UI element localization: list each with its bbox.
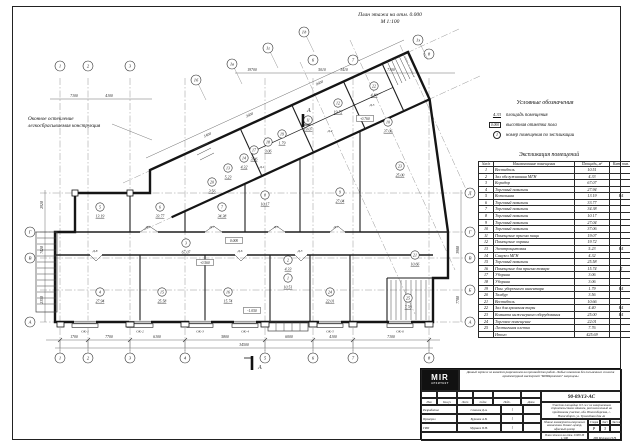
legend-symbol-box: 0.000 — [489, 122, 501, 128]
svg-text:9: 9 — [339, 191, 341, 195]
legend-item-label: номер помещения по экспликации — [506, 133, 574, 138]
svg-text:13.19: 13.19 — [96, 215, 105, 219]
logo-subtext: АРХИТЕКТ — [422, 382, 458, 385]
svg-text:21: 21 — [413, 254, 417, 258]
legend-item: 1номер помещения по экспликации — [470, 130, 620, 140]
object-name: Здание коммерческо-торгового назначения.… — [541, 419, 588, 432]
svg-text:33.77: 33.77 — [156, 215, 166, 219]
schedule-row: 13Электрощитовая5.23В4 — [479, 246, 630, 253]
logo-text: MIR — [422, 373, 458, 382]
schedule-row: 3Коридор67.07 — [479, 180, 630, 187]
plan-scale: М 1:100 — [300, 19, 480, 26]
diagonal-grid-lines — [123, 29, 480, 314]
svg-text:1б: 1б — [194, 78, 199, 83]
schedule-total-row: Итого425.69 — [479, 331, 630, 338]
drawing-sheet: А А 12345678123678ГВАДГВБА1б1в1г1д1з 170… — [0, 0, 630, 445]
document-number: 90-09/13-АС — [541, 391, 622, 402]
svg-text:-1.050: -1.050 — [247, 309, 257, 313]
signature-mark: ⌇ — [501, 423, 523, 432]
svg-text:ОК-6: ОК-6 — [396, 330, 404, 334]
svg-text:1: 1 — [287, 277, 289, 281]
sheet-title-cell: План этажа на отм. 0.000 М 1:100 — [541, 432, 588, 441]
svg-text:22.01: 22.01 — [326, 300, 335, 304]
svg-text:2920: 2920 — [40, 201, 44, 209]
svg-text:9600: 9600 — [315, 80, 324, 87]
schedule-row: 6Торговый павильон33.77 — [479, 199, 630, 206]
schedule-row: 2Зал обслуживания МГН4.33 — [479, 173, 630, 180]
svg-text:1: 1 — [59, 64, 61, 69]
sheet-number: 3 — [600, 425, 610, 432]
title-block: MIR АРХИТЕКТ Данный чертеж не является р… — [420, 368, 621, 440]
svg-text:10.17: 10.17 — [261, 203, 271, 207]
svg-text:15.74: 15.74 — [224, 300, 233, 304]
svg-text:Д-7: Д-7 — [145, 225, 151, 229]
svg-text:7100: 7100 — [387, 335, 395, 339]
site-description: Участок площадью 0.3 га с не завершенным… — [541, 402, 622, 419]
schedule-row: 4Торговый павильон27.94 — [479, 186, 630, 193]
svg-text:8: 8 — [264, 194, 266, 198]
svg-text:ОК-5: ОК-5 — [326, 330, 334, 334]
svg-text:4100: 4100 — [329, 335, 337, 339]
schedule-row: 18Уборная3.06 — [479, 279, 630, 286]
window-labels: ОК-1ОК-2ОК-3ОК-4ОК-5ОК-6 — [81, 330, 404, 334]
signature-role: Разработал — [421, 405, 457, 414]
svg-text:А: А — [468, 320, 472, 325]
svg-text:22: 22 — [372, 85, 376, 89]
svg-text:1: 1 — [59, 356, 61, 361]
svg-text:3: 3 — [185, 242, 187, 246]
svg-text:15: 15 — [160, 291, 164, 295]
svg-text:Д-1: Д-1 — [259, 165, 265, 169]
svg-text:34.38: 34.38 — [218, 215, 227, 219]
svg-text:Б: Б — [468, 288, 472, 293]
svg-text:3.06: 3.06 — [251, 158, 258, 162]
svg-text:7100: 7100 — [387, 68, 395, 72]
svg-text:А: А — [257, 365, 262, 371]
svg-text:Д-7: Д-7 — [273, 225, 279, 229]
svg-text:А: А — [28, 320, 32, 325]
svg-text:3600: 3600 — [245, 112, 254, 119]
signature-name: Соколов Д.А. — [457, 405, 501, 414]
schedule-row: 5Котельная13.19В4 — [479, 193, 630, 200]
svg-text:10.51: 10.51 — [284, 286, 293, 290]
schedule-row: 17Уборная3.06 — [479, 272, 630, 279]
svg-text:25: 25 — [406, 297, 410, 301]
room-schedule-table: №п/пНаименование помещенияПлощадь, м²Кат… — [478, 161, 630, 339]
legend-item: 4.33площадь помещения — [470, 110, 620, 120]
svg-text:5: 5 — [99, 206, 101, 210]
svg-text:3.06: 3.06 — [265, 150, 272, 154]
svg-text:В: В — [29, 256, 32, 261]
corridor-walls — [55, 232, 448, 255]
svg-text:12: 12 — [336, 102, 340, 106]
legend-symbol-area: 4.33 — [493, 112, 501, 117]
svg-text:27.94: 27.94 — [96, 300, 105, 304]
signature-role: ГИП — [421, 423, 457, 432]
svg-text:1700: 1700 — [70, 335, 78, 339]
svg-text:4.32: 4.32 — [241, 166, 248, 170]
svg-text:25.58: 25.58 — [158, 300, 167, 304]
svg-text:10.66: 10.66 — [411, 263, 420, 267]
schedule-row: 15Торговый павильон25.58 — [479, 259, 630, 266]
svg-text:-0.560: -0.560 — [200, 261, 210, 265]
schedule-row: 16Помещение для приема товара15.74Д — [479, 265, 630, 272]
svg-text:Д-8: Д-8 — [92, 249, 98, 253]
svg-text:5.23: 5.23 — [225, 176, 232, 180]
schedule-row: 9Торговый павильон27.04 — [479, 219, 630, 226]
signature-mark: ⌇ — [501, 414, 523, 423]
svg-text:27.04: 27.04 — [336, 200, 345, 204]
svg-text:2: 2 — [287, 259, 289, 263]
firm-logo: MIR АРХИТЕКТ — [421, 369, 459, 391]
svg-text:А: А — [306, 108, 311, 114]
schedule-row: 10Торговый павильон37.06 — [479, 226, 630, 233]
svg-text:1з: 1з — [416, 38, 420, 43]
svg-text:3900: 3900 — [456, 246, 460, 254]
svg-text:Д-5: Д-5 — [369, 103, 375, 107]
legend-item: 0.000высотная отметка пола — [470, 120, 620, 130]
firm-name: ИП Мурзаев П.Н. — [588, 432, 622, 441]
sheets-total — [610, 425, 622, 432]
svg-text:4: 4 — [99, 291, 101, 295]
svg-text:1.79: 1.79 — [279, 142, 286, 146]
schedule-row: 12Помещение охраны19.72 — [479, 239, 630, 246]
svg-text:16: 16 — [226, 291, 230, 295]
signature-name: Буранов А.В. — [457, 414, 501, 423]
schedule-row: 11Помещение приема пищи19.07 — [479, 232, 630, 239]
svg-text:Д-7: Д-7 — [209, 225, 215, 229]
legend-item-label: высотная отметка пола — [506, 123, 557, 128]
room-schedule-title: Экспликация помещений — [478, 152, 620, 158]
schedule-row: 7Торговый павильон34.38 — [479, 206, 630, 213]
signature-mark: ⌇ — [501, 405, 523, 414]
schedule-col-header: Кат. пом. — [610, 161, 630, 166]
svg-text:Г: Г — [468, 230, 472, 235]
svg-text:7.76: 7.76 — [405, 306, 412, 310]
svg-text:18: 18 — [266, 141, 270, 145]
svg-text:Д-6: Д-6 — [237, 249, 243, 253]
room-schedule: Экспликация помещений №п/пНаименование п… — [478, 152, 620, 338]
svg-text:4.33: 4.33 — [285, 268, 292, 272]
svg-text:34500: 34500 — [239, 343, 249, 347]
svg-text:0.000: 0.000 — [230, 239, 238, 243]
svg-text:7700: 7700 — [456, 296, 460, 304]
signature-role: Проверил — [421, 414, 457, 423]
svg-text:2350: 2350 — [40, 296, 44, 304]
exterior-walls — [55, 52, 448, 322]
svg-text:3.56: 3.56 — [209, 190, 216, 194]
svg-text:5400: 5400 — [203, 132, 212, 139]
svg-text:5800: 5800 — [221, 335, 229, 339]
svg-text:25.00: 25.00 — [396, 174, 405, 178]
svg-text:6: 6 — [159, 206, 161, 210]
svg-text:Д-7: Д-7 — [333, 225, 339, 229]
svg-text:ОК-3: ОК-3 — [196, 330, 204, 334]
svg-text:-0.760: -0.760 — [360, 117, 370, 121]
svg-text:4100: 4100 — [105, 94, 113, 98]
svg-text:ОК-1: ОК-1 — [81, 330, 89, 334]
glazing-note: Оконное остекление легкосбрасываемая кон… — [28, 116, 146, 129]
svg-text:20: 20 — [210, 181, 214, 185]
svg-text:В: В — [469, 256, 472, 261]
schedule-row: 1Вестибюль10.51 — [479, 166, 630, 173]
svg-text:7420: 7420 — [40, 246, 44, 254]
legend-item-label: площадь помещения — [506, 113, 548, 118]
schedule-row: 21Вестибюль10.66 — [479, 298, 630, 305]
svg-text:19.07: 19.07 — [304, 128, 314, 132]
schedule-row: 8Торговый павильон10.17 — [479, 213, 630, 220]
svg-text:7100: 7100 — [70, 94, 78, 98]
schedule-row: 25Лестничная клетка7.76 — [479, 325, 630, 332]
copyright-notice: Данный чертеж не является разрешением на… — [459, 369, 622, 391]
svg-text:Г: Г — [28, 230, 32, 235]
schedule-row: 24Торговое помещение22.01 — [479, 318, 630, 325]
svg-text:1г: 1г — [266, 46, 270, 51]
svg-text:67.07: 67.07 — [182, 251, 192, 255]
signature-name: Мурзаев П.Н. — [457, 423, 501, 432]
legend-items: 4.33площадь помещения0.000высотная отмет… — [470, 110, 620, 140]
svg-text:6000: 6000 — [285, 335, 293, 339]
svg-text:19: 19 — [280, 133, 284, 137]
svg-text:10: 10 — [386, 121, 390, 125]
svg-text:Д-3: Д-3 — [297, 249, 303, 253]
svg-text:7700: 7700 — [105, 335, 113, 339]
schedule-row: 22Зал для хранения тары4.40В4 — [479, 305, 630, 312]
svg-text:1д: 1д — [302, 30, 307, 35]
stage-value: Р — [588, 425, 600, 432]
svg-text:13: 13 — [226, 167, 230, 171]
schedule-row: 20Тамбур3.56 — [479, 292, 630, 299]
svg-text:ОК-4: ОК-4 — [241, 330, 249, 334]
schedule-row: 14Санузел МГН4.32 — [479, 252, 630, 259]
svg-text:11: 11 — [306, 119, 310, 123]
svg-text:4.40: 4.40 — [371, 94, 378, 98]
svg-text:5010: 5010 — [318, 68, 326, 72]
legend: Условные обозначения 4.33площадь помещен… — [470, 100, 620, 140]
svg-text:37.06: 37.06 — [384, 130, 393, 134]
svg-text:14: 14 — [242, 157, 246, 161]
svg-text:23: 23 — [398, 165, 402, 169]
plan-title: План этажа на отм. 0.000 М 1:100 — [300, 12, 480, 26]
svg-text:6100: 6100 — [153, 335, 161, 339]
svg-text:19.72: 19.72 — [334, 111, 343, 115]
plan-title-line1: План этажа на отм. 0.000 — [300, 12, 480, 19]
schedule-row: 23Комната инженерного оборудования25.00В… — [479, 311, 630, 318]
svg-text:Д-2: Д-2 — [327, 129, 333, 133]
svg-text:3410: 3410 — [340, 68, 348, 72]
legend-title: Условные обозначения — [470, 100, 620, 106]
legend-symbol-circle: 1 — [493, 131, 501, 139]
svg-text:19700: 19700 — [247, 68, 257, 72]
schedule-row: 19Пом. уборочного инвентаря1.79В4 — [479, 285, 630, 292]
signature-grid: ИзмКол.учЛист№докПодп.ДатаРазработалСоко… — [421, 391, 541, 441]
svg-text:1в: 1в — [230, 62, 234, 67]
glazing-note-line2: легкосбрасываемая конструкция — [28, 123, 146, 130]
svg-text:ОК-2: ОК-2 — [136, 330, 144, 334]
svg-text:24: 24 — [328, 291, 332, 295]
